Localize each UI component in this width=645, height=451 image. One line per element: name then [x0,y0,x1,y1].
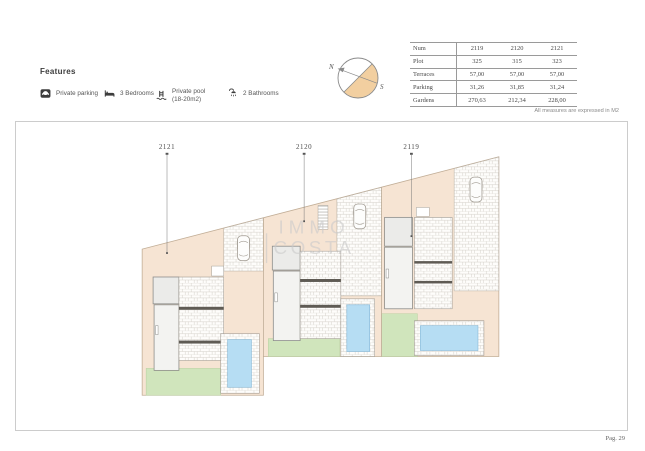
compass-fill-half [344,64,378,98]
leader-end [303,220,305,222]
leader-marker [303,153,306,155]
page-number: Pag. 29 [606,435,626,442]
feature-label: Private pool (18-20m2) [172,88,205,104]
terrace [179,277,224,360]
watermark: IMMO COSTA [266,216,355,263]
house [273,271,300,341]
col-header-2121: 2121 [537,43,577,56]
bath-icon [227,88,238,99]
feature-label-line1: Private pool [172,88,205,95]
col-header-num: Num [410,43,457,56]
row-label: Gardens [410,94,457,107]
features-title: Features [40,67,76,76]
door [156,326,158,335]
feature-label: 3 Bedrooms [120,90,154,98]
row-label: Terraces [410,68,457,81]
leader-end [411,235,413,237]
north-label: N [328,63,334,71]
plot-label-2119: 2119 [403,143,419,151]
door [386,269,388,278]
cell: 57,00 [497,68,537,81]
plot-label-2120: 2120 [296,143,312,151]
table-row-terraces: Terraces 57,00 57,00 57,00 [410,68,577,81]
garden [382,314,418,357]
feature-label: 2 Bathrooms [243,90,279,98]
table-row-plot: Plot 325 315 323 [410,55,577,68]
utility-box [212,266,224,276]
feature-bedrooms: 3 Bedrooms [104,88,154,99]
feature-private-parking: Private parking [40,88,98,99]
south-label: S [380,83,384,91]
cell: 57,00 [537,68,577,81]
garden [268,339,340,357]
car-icon [353,204,366,229]
stair-band [179,307,224,310]
cell: 228,00 [537,94,577,107]
measures-note: All measures are expressed in M2 [534,108,619,114]
leader-end [166,252,168,254]
pool [347,305,370,352]
cell: 212,34 [497,94,537,107]
stair-band [179,341,224,344]
cell: 57,00 [457,68,498,81]
stair-band [414,281,452,283]
bed-icon [104,88,115,99]
feature-label-line2: (18-20m2) [172,96,201,103]
stair-band [414,261,452,263]
garden [146,368,221,395]
cell: 31,26 [457,81,498,94]
leader-marker [410,153,413,155]
cell: 31,85 [497,81,537,94]
measures-table: Num 2119 2120 2121 Plot 325 315 323 Terr… [410,42,577,107]
table-row-parking: Parking 31,26 31,85 31,24 [410,81,577,94]
garage [385,217,413,246]
plot-label-2121: 2121 [159,143,175,151]
watermark-line2: COSTA [274,237,355,258]
compass-rose: N S [326,44,392,110]
stair-band [300,305,341,308]
leader-marker [166,153,169,155]
utility-box [416,207,429,216]
cell: 270,63 [457,94,498,107]
terrace [300,251,341,338]
site-plan: IMMO COSTA 2121 2120 2119 [16,122,627,430]
row-label: Plot [410,55,457,68]
pool [420,326,478,351]
garage [153,277,179,304]
pool-icon [156,90,167,101]
pool [228,340,252,388]
cell: 323 [537,55,577,68]
table-row-gardens: Gardens 270,63 212,34 228,00 [410,94,577,107]
feature-bathrooms: 2 Bathrooms [227,88,279,99]
parking-icon [40,88,51,99]
row-label: Parking [410,81,457,94]
car-icon [237,236,250,261]
cell: 315 [497,55,537,68]
cell: 325 [457,55,498,68]
door [275,293,277,302]
feature-label: Private parking [56,90,98,98]
watermark-bar [266,233,267,263]
car-icon [470,177,483,202]
feature-private-pool: Private pool (18-20m2) [156,88,205,104]
brochure-page: Features Private parking 3 Bedrooms Priv… [0,0,645,451]
house [154,305,179,371]
plan-frame: IMMO COSTA 2121 2120 2119 [15,121,628,431]
watermark-line1: IMMO [278,216,349,237]
col-header-2119: 2119 [457,43,498,56]
stair-band [300,279,341,282]
table-header-row: Num 2119 2120 2121 [410,43,577,56]
cell: 31,24 [537,81,577,94]
col-header-2120: 2120 [497,43,537,56]
